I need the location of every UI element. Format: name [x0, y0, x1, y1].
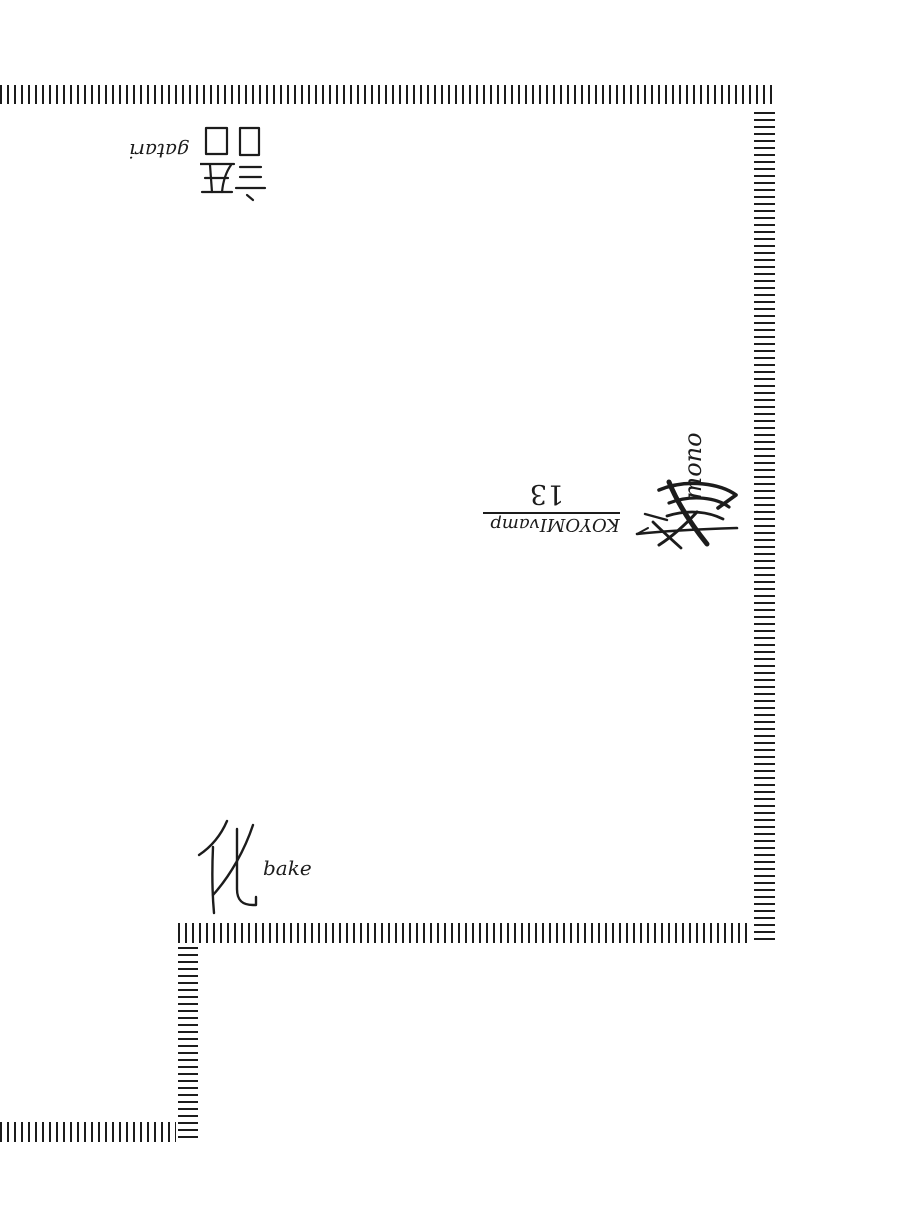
border-strip-right — [754, 112, 775, 943]
border-strip-bottom — [178, 923, 752, 943]
border-strip-bottom-left — [0, 1122, 176, 1142]
kanji-bake-glyph — [193, 817, 261, 915]
manga-title-page: gatari mono 13 KOYOMIvamp bake — [0, 0, 900, 1227]
romaji-gatari: gatari — [129, 139, 190, 163]
series-label: KOYOMIvamp — [490, 514, 620, 535]
kanji-gatari-glyph — [200, 116, 268, 202]
romaji-bake: bake — [263, 856, 312, 880]
kanji-mono-glyph — [633, 476, 743, 554]
border-strip-top — [0, 85, 775, 104]
border-strip-left-lower — [178, 947, 198, 1143]
volume-number: 13 — [522, 478, 572, 509]
